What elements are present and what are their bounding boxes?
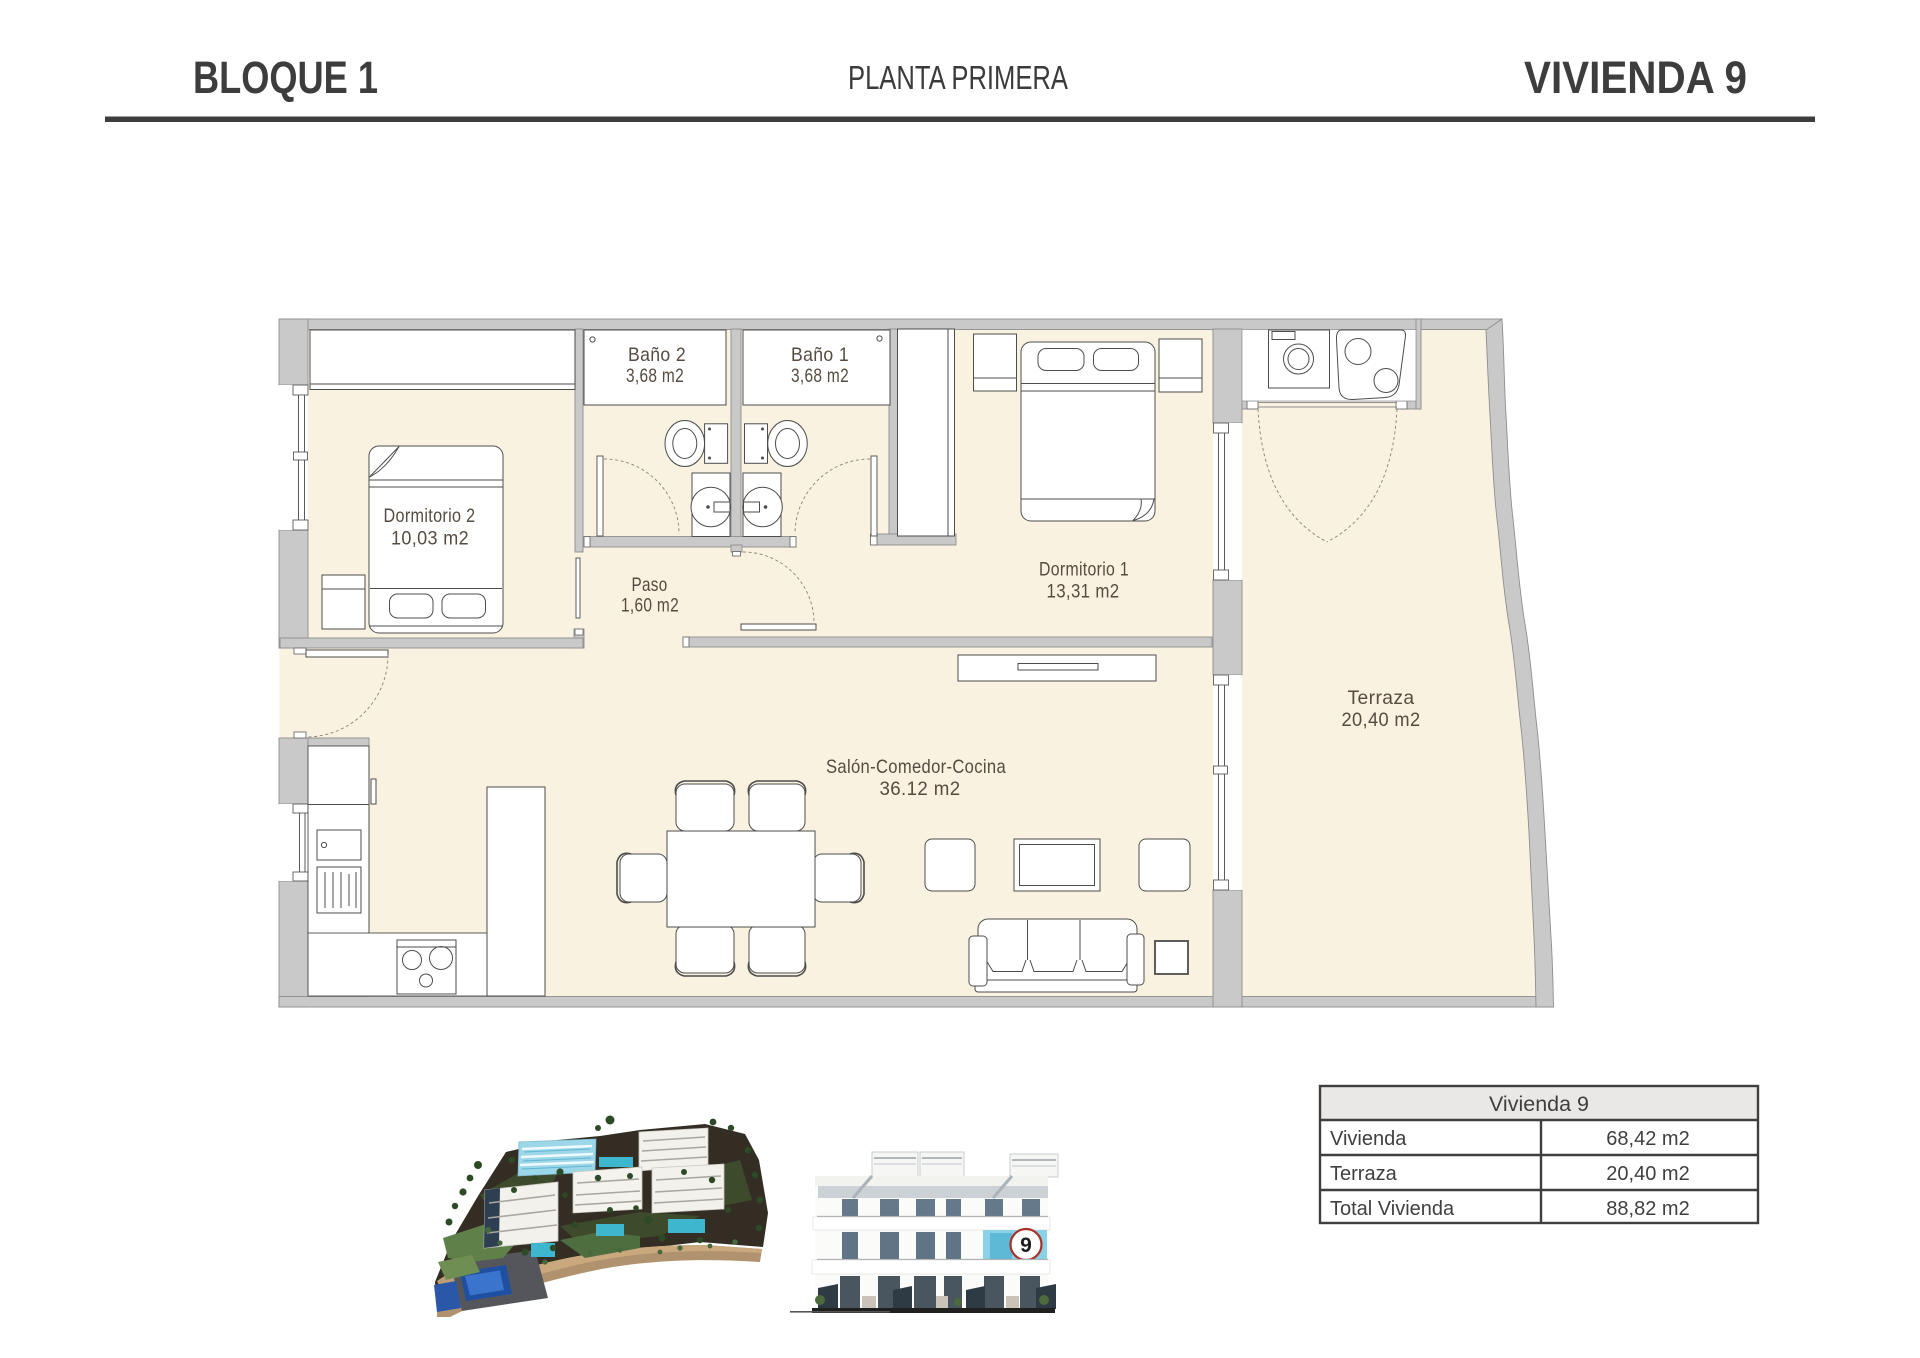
svg-text:13,31 m2: 13,31 m2 (1047, 581, 1120, 603)
svg-text:Baño 1: Baño 1 (791, 344, 849, 366)
svg-text:Baño 2: Baño 2 (628, 344, 686, 366)
svg-text:10,03 m2: 10,03 m2 (391, 528, 469, 550)
svg-text:1,60 m2: 1,60 m2 (621, 595, 679, 617)
svg-text:36.12 m2: 36.12 m2 (880, 778, 961, 800)
svg-text:VIVIENDA 9: VIVIENDA 9 (1524, 52, 1747, 103)
svg-text:68,42 m2: 68,42 m2 (1606, 1128, 1689, 1150)
svg-text:9: 9 (1020, 1234, 1032, 1257)
svg-text:20,40 m2: 20,40 m2 (1342, 709, 1421, 731)
svg-text:Terraza: Terraza (1348, 687, 1415, 709)
svg-text:Total Vivienda: Total Vivienda (1330, 1198, 1455, 1220)
svg-text:Dormitorio 1: Dormitorio 1 (1039, 559, 1129, 581)
svg-text:3,68 m2: 3,68 m2 (791, 365, 849, 387)
svg-text:Salón-Comedor-Cocina: Salón-Comedor-Cocina (826, 756, 1006, 778)
svg-text:88,82 m2: 88,82 m2 (1606, 1198, 1689, 1220)
svg-text:BLOQUE 1: BLOQUE 1 (193, 52, 378, 103)
svg-text:PLANTA PRIMERA: PLANTA PRIMERA (848, 59, 1068, 96)
svg-text:3,68 m2: 3,68 m2 (626, 365, 684, 387)
svg-text:Vivienda 9: Vivienda 9 (1489, 1092, 1589, 1116)
svg-text:Dormitorio 2: Dormitorio 2 (384, 505, 476, 527)
svg-text:Terraza: Terraza (1330, 1163, 1398, 1185)
svg-text:Paso: Paso (632, 574, 668, 596)
svg-text:Vivienda: Vivienda (1330, 1128, 1407, 1150)
svg-text:20,40 m2: 20,40 m2 (1606, 1163, 1689, 1185)
